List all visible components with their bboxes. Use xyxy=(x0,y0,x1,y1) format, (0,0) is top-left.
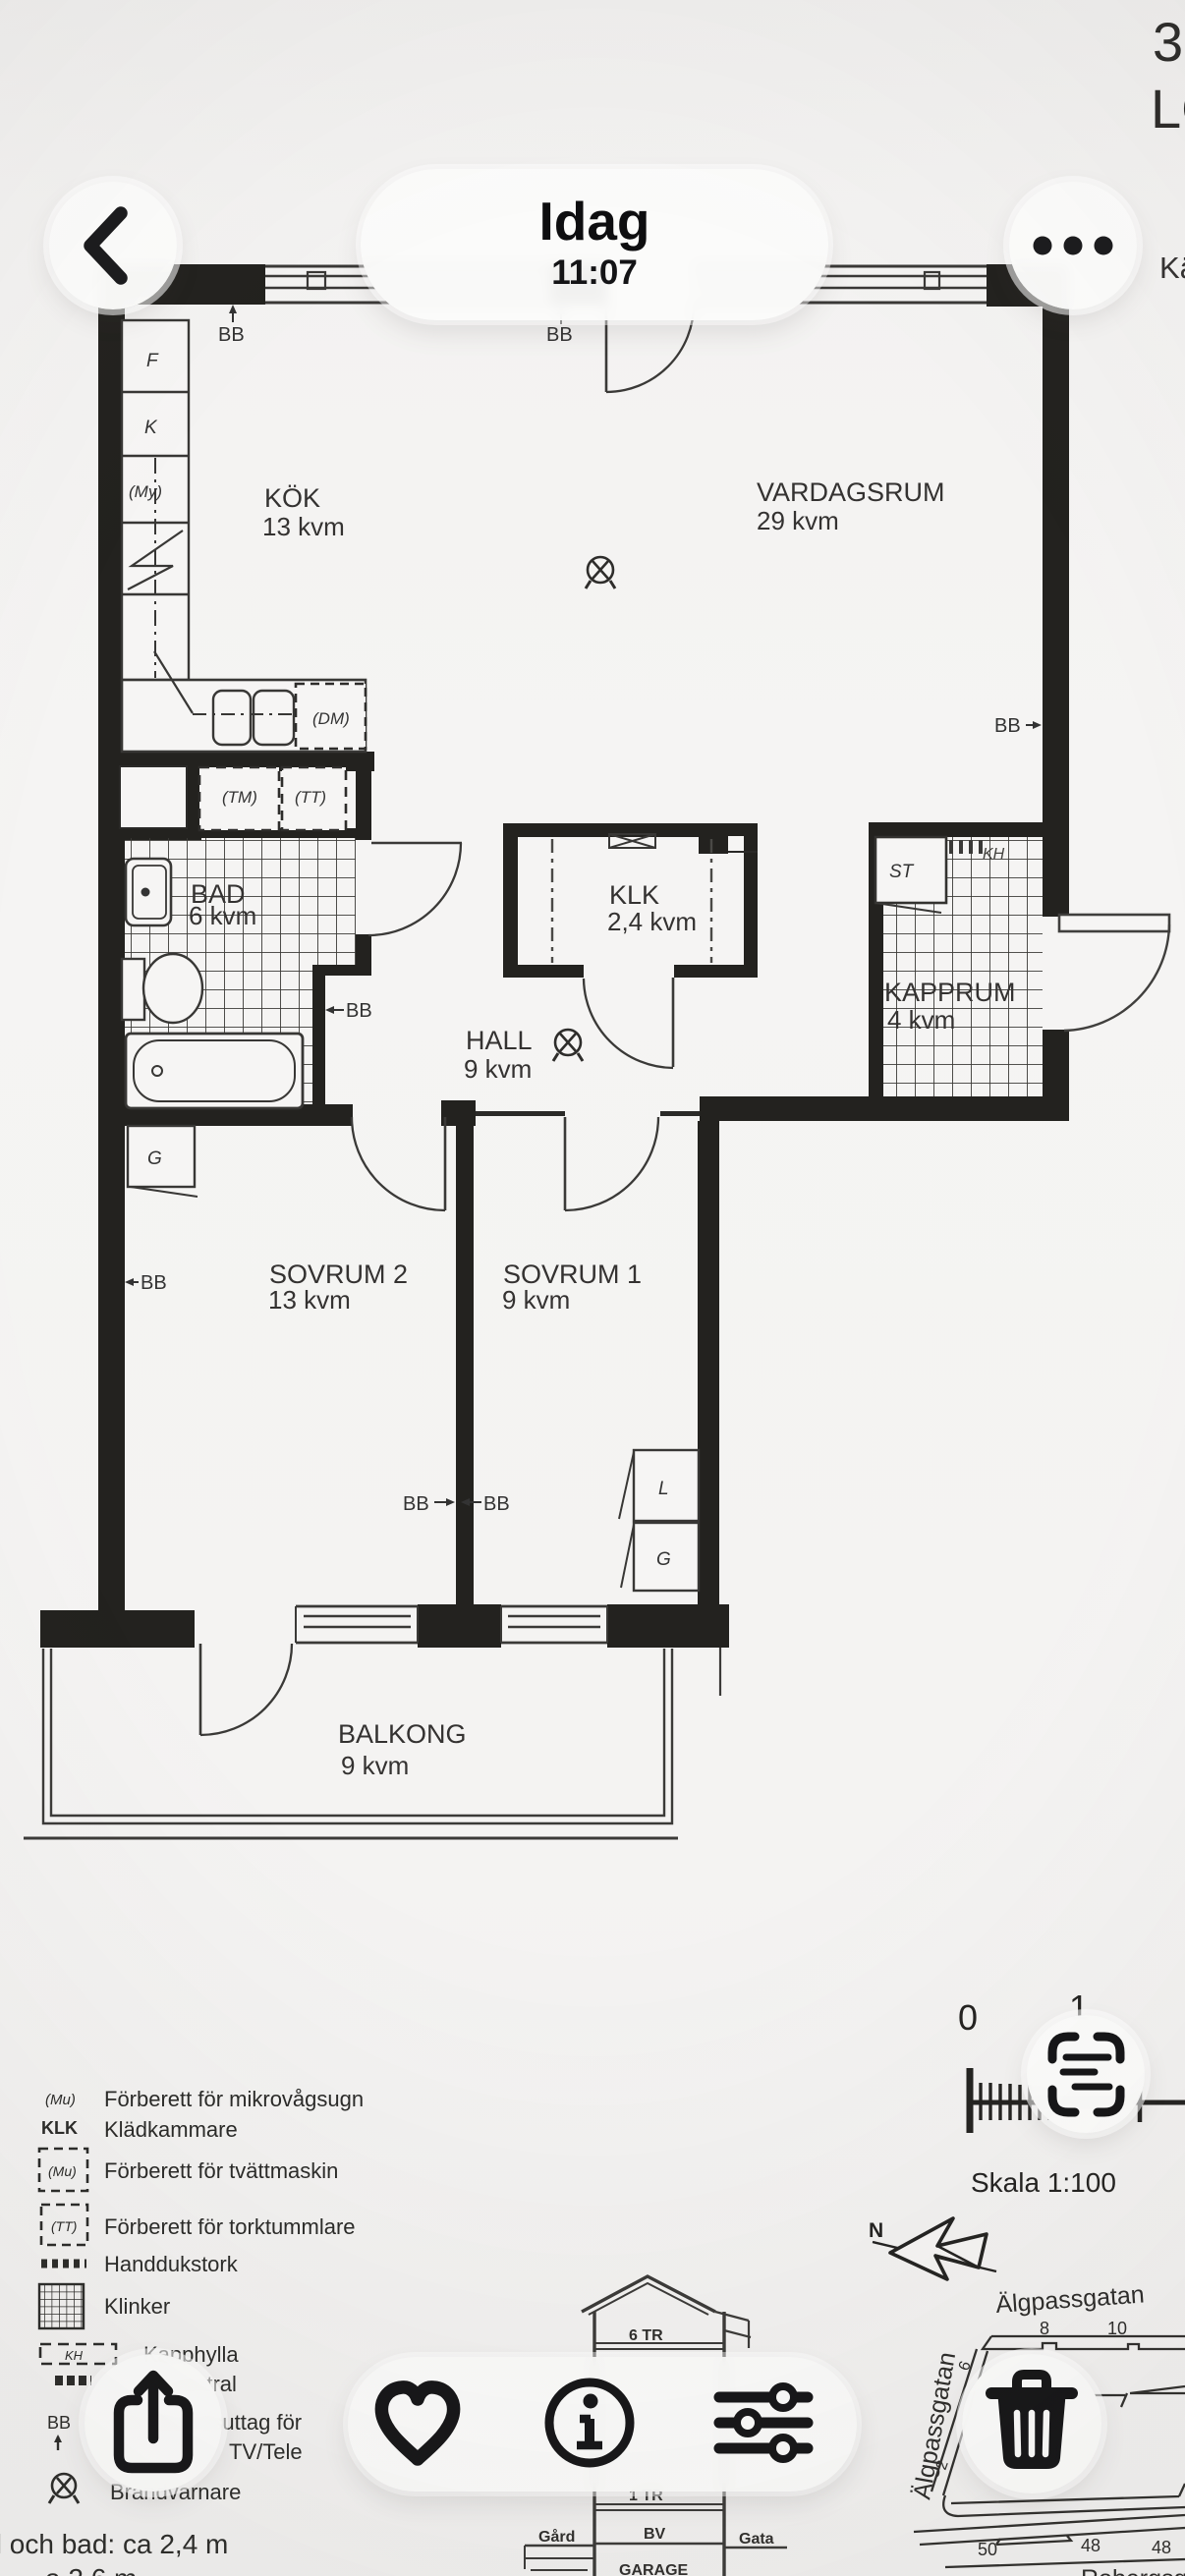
svg-text:50: 50 xyxy=(978,2540,997,2559)
svg-text:KLK: KLK xyxy=(609,880,659,910)
svg-text:29 kvm: 29 kvm xyxy=(757,506,839,535)
svg-text:Skala 1:100: Skala 1:100 xyxy=(971,2167,1116,2198)
svg-text:TV/Tele: TV/Tele xyxy=(229,2439,303,2464)
svg-text:(TT): (TT) xyxy=(295,788,326,807)
svg-text:BB: BB xyxy=(546,324,573,346)
svg-text:Förberett för tvättmaskin: Förberett för tvättmaskin xyxy=(104,2158,338,2183)
svg-text:Klädkammare: Klädkammare xyxy=(104,2117,238,2142)
svg-text:KH: KH xyxy=(983,846,1005,863)
svg-text:9 kvm: 9 kvm xyxy=(464,1054,532,1084)
svg-text:BB: BB xyxy=(218,324,245,346)
svg-text:Gård: Gård xyxy=(538,2528,575,2546)
svg-text:Klinker: Klinker xyxy=(104,2294,170,2319)
svg-text:BB: BB xyxy=(346,1000,372,1022)
svg-text:(Mu): (Mu) xyxy=(48,2163,77,2179)
svg-text:6 TR: 6 TR xyxy=(629,2327,663,2344)
svg-text:VARDAGSRUM: VARDAGSRUM xyxy=(757,477,945,507)
svg-text:6 kvm: 6 kvm xyxy=(189,901,256,930)
svg-text:9 kvm: 9 kvm xyxy=(502,1285,570,1315)
svg-text:BB: BB xyxy=(47,2413,71,2433)
svg-text:BV: BV xyxy=(644,2526,666,2543)
svg-text:all och bad: ca 2,4 m: all och bad: ca 2,4 m xyxy=(0,2529,228,2559)
svg-text:BB: BB xyxy=(483,1493,510,1515)
svg-text:K: K xyxy=(144,418,158,438)
svg-text:F: F xyxy=(146,351,159,371)
svg-text:Robergsg: Robergsg xyxy=(1081,2565,1185,2576)
svg-text:N: N xyxy=(869,2219,883,2242)
svg-text:G: G xyxy=(656,1549,671,1570)
svg-text:Förberett för torktummlare: Förberett för torktummlare xyxy=(104,2214,356,2239)
svg-text:13 kvm: 13 kvm xyxy=(262,512,345,541)
svg-text:(My): (My) xyxy=(129,482,162,501)
svg-text:(TM): (TM) xyxy=(222,788,257,807)
svg-text:KÖK: KÖK xyxy=(264,483,320,513)
svg-text:0: 0 xyxy=(958,1997,978,2038)
svg-text:Gata: Gata xyxy=(739,2531,774,2548)
svg-text:HALL: HALL xyxy=(466,1026,533,1055)
svg-text:48: 48 xyxy=(1081,2536,1100,2555)
svg-text:Älgpassgatan: Älgpassgatan xyxy=(994,2280,1145,2319)
svg-text:L: L xyxy=(658,1479,669,1499)
svg-text:a 2,6 m: a 2,6 m xyxy=(45,2563,137,2576)
svg-text:3: 3 xyxy=(1153,11,1183,73)
svg-text:13 kvm: 13 kvm xyxy=(268,1285,351,1315)
svg-text:LG: LG xyxy=(1151,78,1185,140)
svg-text:BB: BB xyxy=(141,1272,167,1294)
svg-text:48: 48 xyxy=(1152,2538,1171,2557)
svg-text:ST: ST xyxy=(889,862,915,882)
svg-text:GARAGE: GARAGE xyxy=(619,2562,689,2576)
svg-text:Kä: Kä xyxy=(1159,251,1185,285)
svg-text:BALKONG: BALKONG xyxy=(338,1719,467,1749)
svg-text:9 kvm: 9 kvm xyxy=(341,1751,409,1780)
svg-text:BB: BB xyxy=(403,1493,429,1515)
svg-text:KLK: KLK xyxy=(41,2118,78,2138)
svg-text:(DM): (DM) xyxy=(312,709,350,728)
svg-text:(Mu): (Mu) xyxy=(45,2092,76,2108)
svg-text:G: G xyxy=(147,1148,162,1169)
svg-text:4 kvm: 4 kvm xyxy=(887,1005,955,1035)
svg-text:BB: BB xyxy=(994,715,1021,737)
svg-text:KAPPRUM: KAPPRUM xyxy=(884,978,1016,1007)
svg-text:2,4 kvm: 2,4 kvm xyxy=(607,907,697,936)
svg-text:Förberett för mikrovågsugn: Förberett för mikrovågsugn xyxy=(104,2087,364,2111)
svg-text:(TT): (TT) xyxy=(51,2218,77,2234)
svg-text:Handdukstork: Handdukstork xyxy=(104,2252,239,2276)
svg-text:KH: KH xyxy=(65,2348,84,2363)
